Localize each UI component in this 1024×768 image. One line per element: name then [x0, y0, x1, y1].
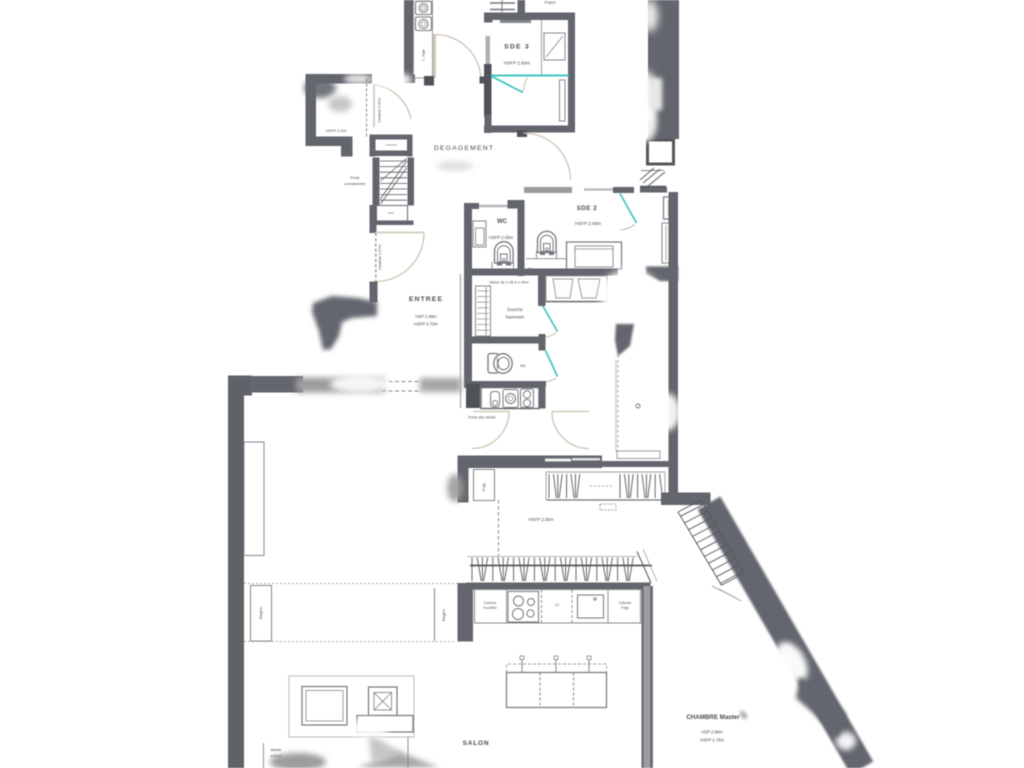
svg-text:HSFP 2.4m: HSFP 2.4m: [326, 128, 347, 133]
svg-text:HSFP 2.65m: HSFP 2.65m: [504, 61, 530, 66]
svg-text:Hauteur 2.07m: Hauteur 2.07m: [378, 244, 382, 269]
svg-text:hammam: hammam: [506, 315, 525, 320]
svg-text:Frigo: Frigo: [482, 483, 486, 491]
svg-text:Douche: Douche: [507, 307, 523, 312]
svg-text:DEGAGEMENT: DEGAGEMENT: [434, 145, 494, 152]
svg-text:SDE 3: SDE 3: [504, 44, 530, 51]
svg-text:Hauteur 2.67m: Hauteur 2.67m: [378, 97, 382, 122]
svg-text:Colonne: Colonne: [484, 601, 497, 605]
svg-text:HSFP 2.55m: HSFP 2.55m: [528, 517, 553, 522]
svg-text:WC: WC: [497, 219, 508, 225]
svg-text:HSP 2.98m: HSP 2.98m: [415, 314, 437, 319]
svg-text:ENTREE: ENTREE: [409, 296, 443, 303]
svg-text:Étagère: Étagère: [258, 607, 263, 619]
svg-text:HSFP 2.75m: HSFP 2.75m: [700, 738, 724, 743]
svg-text:Porte des studio: Porte des studio: [468, 416, 495, 420]
svg-text:Étagère: Étagère: [441, 609, 446, 621]
svg-text:Niche de 1.05 à 1.40m: Niche de 1.05 à 1.40m: [489, 280, 528, 285]
svg-text:CHAMBRE Master: CHAMBRE Master: [686, 714, 740, 721]
svg-text:HSP 2.88m: HSP 2.88m: [701, 730, 723, 735]
svg-text:Colonne: Colonne: [619, 601, 632, 605]
svg-text:HSFP 2.70m: HSFP 2.70m: [414, 322, 438, 327]
svg-text:condamnée: condamnée: [345, 181, 367, 186]
svg-text:Meuble: Meuble: [271, 748, 282, 752]
svg-text:Frigo: Frigo: [621, 606, 629, 610]
svg-text:Wc: Wc: [520, 364, 526, 368]
svg-text:Porte: Porte: [350, 175, 360, 180]
svg-text:SALON: SALON: [463, 740, 490, 747]
svg-text:LV: LV: [555, 603, 560, 607]
svg-text:SDE 2: SDE 2: [577, 205, 597, 212]
svg-text:HSFP 2.65m: HSFP 2.65m: [575, 221, 601, 226]
svg-text:L. linge: L. linge: [422, 49, 426, 60]
svg-text:Engins: Engins: [545, 1, 556, 5]
svg-text:Four/MO: Four/MO: [483, 606, 497, 610]
svg-text:HSFP 2.65m: HSFP 2.65m: [489, 235, 514, 240]
